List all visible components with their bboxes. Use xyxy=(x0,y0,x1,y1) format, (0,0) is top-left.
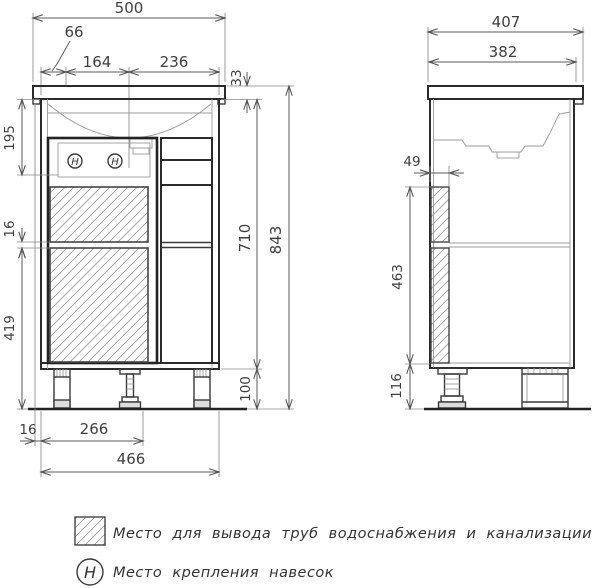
hinge-marker-right: H xyxy=(108,154,122,168)
side-leg-back-adjustable xyxy=(438,368,467,408)
vanity-technical-drawing: 500 66 164 236 xyxy=(0,0,600,588)
hinge-marker-left-letter: H xyxy=(71,157,79,168)
legend: Место для вывода труб водоснабжения и ка… xyxy=(75,517,592,585)
front-leg-center-adjustable xyxy=(120,369,141,408)
dim-front-ref-left: 164 xyxy=(83,53,112,71)
side-countertop xyxy=(428,86,583,104)
dim-front-body-height: 710 xyxy=(236,224,254,253)
front-right-dimensions: 33 710 100 843 xyxy=(221,69,294,409)
hinge-marker-right-letter: H xyxy=(111,157,119,168)
legend-hinge-letter: H xyxy=(84,563,96,582)
sink-trap-outline xyxy=(133,148,149,154)
sink-bowl-outline xyxy=(48,104,211,138)
dim-front-lower-section-height: 419 xyxy=(2,315,18,341)
legend-pipe-item: Место для вывода труб водоснабжения и ка… xyxy=(75,517,592,545)
side-top-dimensions: 407 382 xyxy=(428,13,583,82)
dim-front-shelf-gap: 16 xyxy=(2,220,18,237)
side-leg-front xyxy=(522,368,568,408)
pipe-zone-front-lower xyxy=(50,248,148,362)
front-view: 500 66 164 236 xyxy=(2,0,294,477)
dim-front-total-height: 843 xyxy=(267,226,285,255)
pipe-zone-front-upper xyxy=(50,187,148,242)
sink-drain-outline xyxy=(130,139,152,148)
technical-drawing-page: 500 66 164 236 xyxy=(0,0,600,588)
legend-hinge-item: H Место крепления навесок xyxy=(77,559,334,585)
front-legs xyxy=(54,369,210,408)
front-leg-right xyxy=(194,369,210,408)
basin-underside-outline xyxy=(433,112,570,152)
dim-front-hinge-zone-height: 195 xyxy=(2,125,18,151)
dim-front-leg-span: 266 xyxy=(80,420,109,438)
front-drawer-column xyxy=(161,138,212,363)
side-view: 407 382 xyxy=(389,13,591,409)
dim-side-leg-height: 116 xyxy=(389,373,405,399)
dim-front-left-offset: 66 xyxy=(64,23,83,41)
dim-front-leg-height: 100 xyxy=(238,376,254,402)
legend-pipe-label: Место для вывода труб водоснабжения и ка… xyxy=(113,526,592,542)
dim-front-ref-right: 236 xyxy=(160,53,189,71)
pipe-zone-side-lower xyxy=(431,248,449,363)
legend-hatch-square-symbol xyxy=(75,517,105,545)
hinge-marker-left: H xyxy=(68,154,82,168)
side-drain-outline xyxy=(497,152,519,158)
dim-front-countertop-thickness: 33 xyxy=(229,69,245,86)
side-left-dimensions: 49 463 116 xyxy=(389,154,464,409)
legend-hinge-label: Место крепления навесок xyxy=(113,565,334,581)
front-leg-left xyxy=(54,369,70,408)
dim-front-base-offset: 16 xyxy=(19,422,36,438)
dim-side-pipe-strip-height: 463 xyxy=(390,264,406,290)
dim-side-body-depth: 382 xyxy=(489,43,518,61)
side-legs xyxy=(438,368,568,408)
dim-side-total-depth: 407 xyxy=(492,13,521,31)
side-cabinet-body xyxy=(430,99,574,368)
pipe-zone-side-upper xyxy=(431,187,449,242)
dim-side-pipe-strip-width: 49 xyxy=(403,154,420,170)
dim-front-body-width: 466 xyxy=(117,450,146,468)
dim-front-total-width: 500 xyxy=(115,0,144,17)
